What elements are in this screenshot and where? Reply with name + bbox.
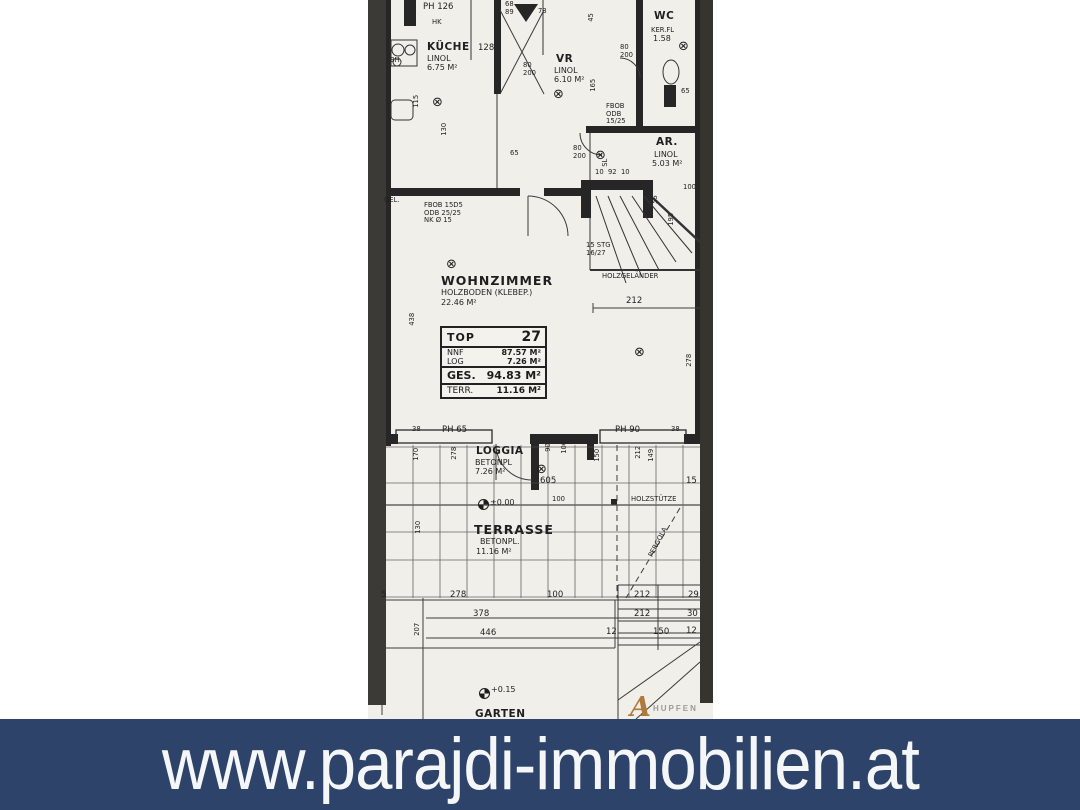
lamp-icon: ⊗	[446, 258, 457, 271]
plan-label: 150	[653, 628, 669, 638]
plan-label: 605	[540, 477, 556, 487]
plan-label: 100	[683, 184, 696, 192]
plan-label: 73	[538, 8, 547, 16]
plan-label: ±0.00	[490, 499, 515, 508]
plan-label: 438	[409, 313, 417, 326]
plan-label: 6.10 M²	[554, 76, 584, 85]
plan-label: 22.46 M²	[441, 299, 477, 308]
website-url: www.parajdi-immobilien.at	[161, 723, 918, 806]
plan-label: LOGGIA	[476, 446, 524, 458]
plan-label: 80 200	[523, 62, 536, 77]
plan-label: HOLZSTÜTZE	[631, 496, 676, 504]
toilet-icon	[663, 60, 679, 84]
plan-label: 130	[415, 521, 423, 534]
row-label: LOG	[447, 357, 464, 366]
plan-label: 15	[686, 477, 697, 487]
floorplan-scan: PH 126HK68 8973BHKÜCHELINOL6.75 M²128VRL…	[368, 0, 713, 719]
table-row: GES.94.83 M²	[442, 368, 545, 383]
plan-label: WC	[654, 11, 674, 23]
plan-label: 100	[552, 496, 565, 504]
plan-label: 278	[686, 354, 694, 367]
plan-label: KÜCHE	[427, 42, 470, 54]
plan-label: 5	[381, 591, 386, 601]
plan-label: FBOB 15D5 ODB 25/25 NK Ø 15	[424, 202, 463, 225]
plan-label: +0.15	[491, 686, 516, 695]
plan-label: BH	[390, 57, 400, 65]
lamp-icon: ⊗	[595, 149, 606, 162]
plan-label: TERRASSE	[474, 523, 554, 537]
plan-label: GARTEN	[475, 709, 525, 719]
plan-label: 38	[412, 426, 421, 434]
plan-label: 30	[687, 610, 698, 620]
lamp-icon: ⊗	[553, 88, 564, 101]
plan-label: 100	[561, 441, 569, 454]
plan-label: WOHNZIMMER	[441, 274, 553, 288]
row-label: GES.	[447, 369, 476, 382]
plan-label: HK	[432, 19, 442, 27]
scan-edge-right	[700, 0, 713, 703]
plan-label: 11.16 M²	[476, 548, 512, 557]
plan-label: 207	[414, 623, 422, 636]
logo-text: HUPFEN	[653, 704, 698, 713]
plan-label: 12	[606, 628, 617, 638]
plan-label: 212	[635, 446, 643, 459]
plan-label: 12	[686, 627, 697, 637]
row-value: 7.26 M²	[507, 357, 541, 366]
plan-label: 7.26 M²	[475, 468, 505, 477]
pergola-dashed-lines	[617, 445, 680, 598]
area-summary-table: TOP27NNF87.57 M²LOG7.26 M²GES.94.83 M²TE…	[440, 326, 547, 399]
plan-label: 128	[478, 44, 494, 54]
plan-label: 29	[688, 591, 699, 601]
row-label: TOP	[447, 331, 475, 344]
table-row: NNF87.57 M²	[442, 348, 545, 357]
plan-label: 130	[441, 123, 449, 136]
website-banner: www.parajdi-immobilien.at	[0, 719, 1080, 810]
plan-label: 212	[634, 591, 650, 601]
row-value: 27	[522, 329, 541, 345]
plan-label: 115	[413, 95, 421, 108]
plan-label: 195	[668, 213, 676, 226]
lamp-icon: ⊗	[678, 40, 689, 53]
plan-label: PH 126	[423, 3, 453, 13]
plan-label: AR.	[656, 137, 678, 149]
plan-label: 65	[510, 150, 519, 158]
plan-label: 165	[590, 79, 598, 92]
plan-label: FBOB ODB 15/25	[606, 103, 626, 126]
watermark-logo: A HUPFEN	[630, 694, 698, 719]
plan-label: 45	[588, 13, 596, 22]
plan-label: 1.58	[653, 35, 671, 44]
plan-label: 80 200	[620, 44, 633, 59]
walls	[386, 0, 701, 505]
row-value: 87.57 M²	[501, 348, 541, 357]
plan-label: HOLZGELÄNDER	[602, 273, 658, 281]
plan-label: 100	[547, 591, 563, 601]
plan-label: 15 STG 16/27	[586, 242, 611, 257]
plan-label: 278	[451, 447, 459, 460]
lamp-icon: ⊗	[536, 463, 547, 476]
lamp-icon: ⊗	[432, 96, 443, 109]
row-value: 11.16 M²	[497, 386, 542, 396]
level-marker-icon	[479, 688, 490, 699]
plan-label: 446	[480, 629, 496, 639]
table-row: TERR.11.16 M²	[442, 385, 545, 397]
logo-letter-icon: A	[630, 694, 651, 719]
plan-label: GEL.	[384, 197, 400, 205]
plan-label: 65	[681, 88, 690, 96]
plan-label: 5.03 M²	[652, 160, 682, 169]
section-marker-icon	[514, 4, 538, 22]
plan-label: PH 65	[442, 426, 467, 436]
plan-label: BETONPL.	[480, 538, 520, 547]
table-row: TOP27	[442, 328, 545, 346]
plan-label: PH 90	[615, 426, 640, 436]
plan-label: 212	[626, 297, 642, 307]
plan-label: 55	[652, 195, 660, 204]
plan-label: 10 92 10	[595, 169, 630, 177]
plan-label: 90	[545, 443, 553, 452]
plan-label: 278	[450, 591, 466, 601]
plan-label: 378	[473, 610, 489, 620]
plan-label: 80 200	[573, 145, 586, 160]
plan-label: HOLZBODEN (KLEBEP.)	[441, 289, 532, 298]
plan-label: 68 89	[505, 1, 514, 16]
plan-label: 150	[594, 449, 602, 462]
plan-label: 38	[671, 426, 680, 434]
row-value: 94.83 M²	[487, 369, 541, 382]
plan-label: VR	[556, 54, 573, 66]
row-label: TERR.	[447, 386, 473, 396]
plan-label: 212	[634, 610, 650, 620]
row-label: NNF	[447, 348, 464, 357]
lamp-icon: ⊗	[634, 346, 645, 359]
plan-label: 149	[648, 449, 656, 462]
level-marker-icon	[478, 499, 489, 510]
plan-label: 6.75 M²	[427, 64, 457, 73]
table-row: LOG7.26 M²	[442, 357, 545, 366]
plan-label: 170	[413, 448, 421, 461]
